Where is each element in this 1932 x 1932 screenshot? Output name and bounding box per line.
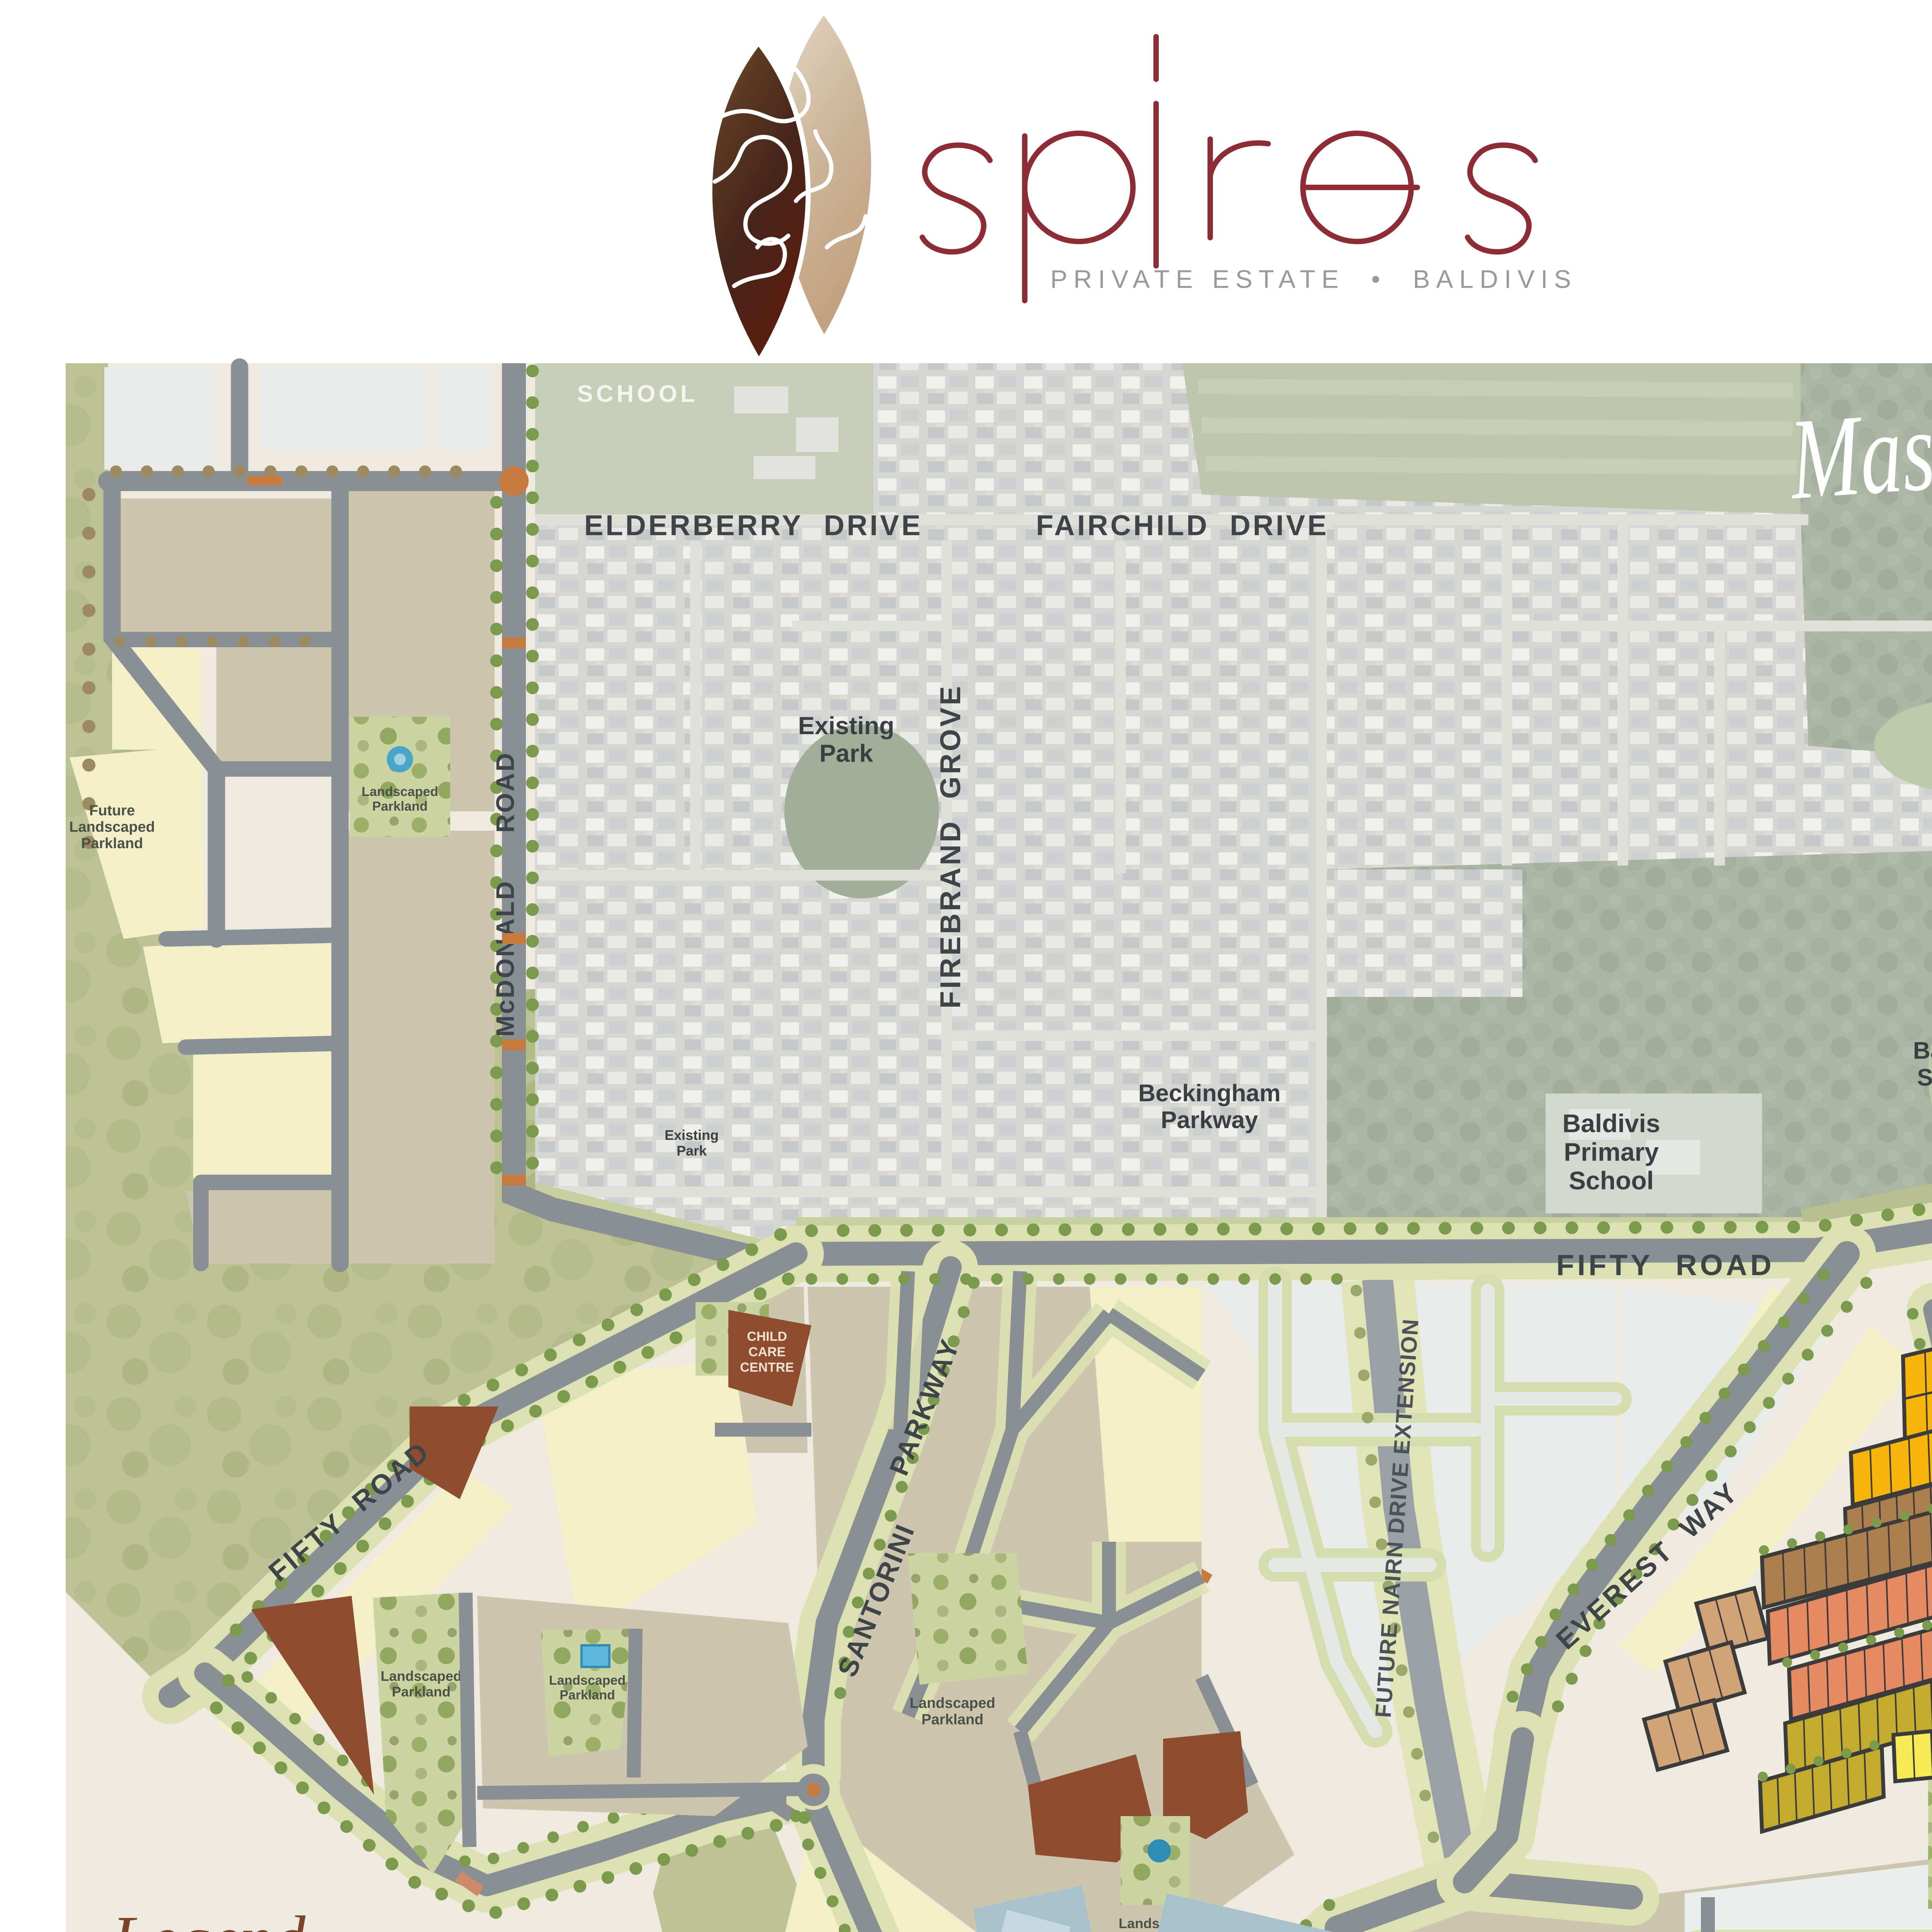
svg-text:ROAD: ROAD bbox=[491, 752, 519, 833]
svg-text:FIFTY ROAD: FIFTY ROAD bbox=[1556, 1249, 1774, 1282]
svg-text:LandscapedParkland: LandscapedParkland bbox=[549, 1673, 626, 1702]
svg-text:Legend: Legend bbox=[111, 1903, 306, 1932]
svg-text:BaldivisPrimarySchool: BaldivisPrimarySchool bbox=[1562, 1109, 1660, 1195]
svg-text:LandscapedParkland: LandscapedParkland bbox=[381, 1668, 462, 1699]
svg-text:LandscapedParkland: LandscapedParkland bbox=[362, 784, 438, 814]
svg-text:FAIRCHILD DRIVE: FAIRCHILD DRIVE bbox=[1036, 509, 1329, 541]
svg-text:LandscapedParkland: LandscapedParkland bbox=[910, 1695, 995, 1728]
svg-text:FIREBRAND GROVE: FIREBRAND GROVE bbox=[934, 684, 966, 1009]
svg-text:ELDERBERRY DRIVE: ELDERBERRY DRIVE bbox=[584, 509, 923, 541]
svg-text:SCHOOL: SCHOOL bbox=[577, 381, 698, 407]
svg-text:PRIVATE ESTATE • BALDIVIS: PRIVATE ESTATE • BALDIVIS bbox=[1050, 265, 1577, 293]
svg-text:McDONALD: McDONALD bbox=[491, 880, 519, 1037]
svg-text:RIALTO WAY: RIALTO WAY bbox=[1686, 1929, 1861, 1932]
